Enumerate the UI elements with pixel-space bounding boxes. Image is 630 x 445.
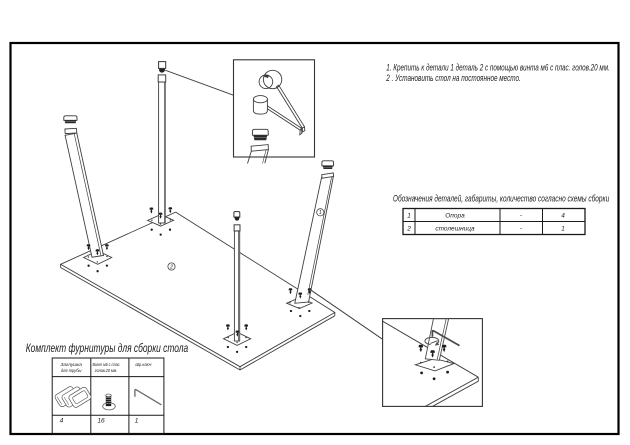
svg-text:голов.20 мм.: голов.20 мм. — [95, 368, 118, 374]
svg-text:Винт м6 с плас.: Винт м6 с плас. — [93, 362, 121, 368]
svg-text:1: 1 — [319, 210, 322, 216]
svg-text:4: 4 — [60, 417, 64, 424]
svg-text:1: 1 — [135, 417, 139, 424]
svg-text:1: 1 — [561, 226, 565, 233]
svg-text:2 . Установить стол на постоян: 2 . Установить стол на постоянное место. — [386, 73, 521, 83]
svg-text:Шр.ключ: Шр.ключ — [135, 362, 151, 368]
svg-text:Опора: Опора — [445, 213, 465, 220]
svg-text:для трубы: для трубы — [61, 368, 82, 374]
svg-text:Комплект фурнитуры для сборки: Комплект фурнитуры для сборки стола — [26, 341, 189, 355]
svg-text:Обозначения деталей, габариты,: Обозначения деталей, габариты, количеств… — [393, 193, 609, 203]
svg-text:Заглушка: Заглушка — [60, 362, 82, 368]
svg-text:2: 2 — [169, 264, 173, 270]
svg-text:1. Крепить к детали 1 деталь 2: 1. Крепить к детали 1 деталь 2 с помощью… — [386, 62, 610, 72]
svg-text:4: 4 — [561, 213, 565, 220]
svg-text:2: 2 — [406, 226, 411, 233]
svg-text:1: 1 — [407, 213, 411, 220]
svg-text:16: 16 — [97, 417, 105, 424]
svg-text:столешница: столешница — [435, 226, 475, 233]
